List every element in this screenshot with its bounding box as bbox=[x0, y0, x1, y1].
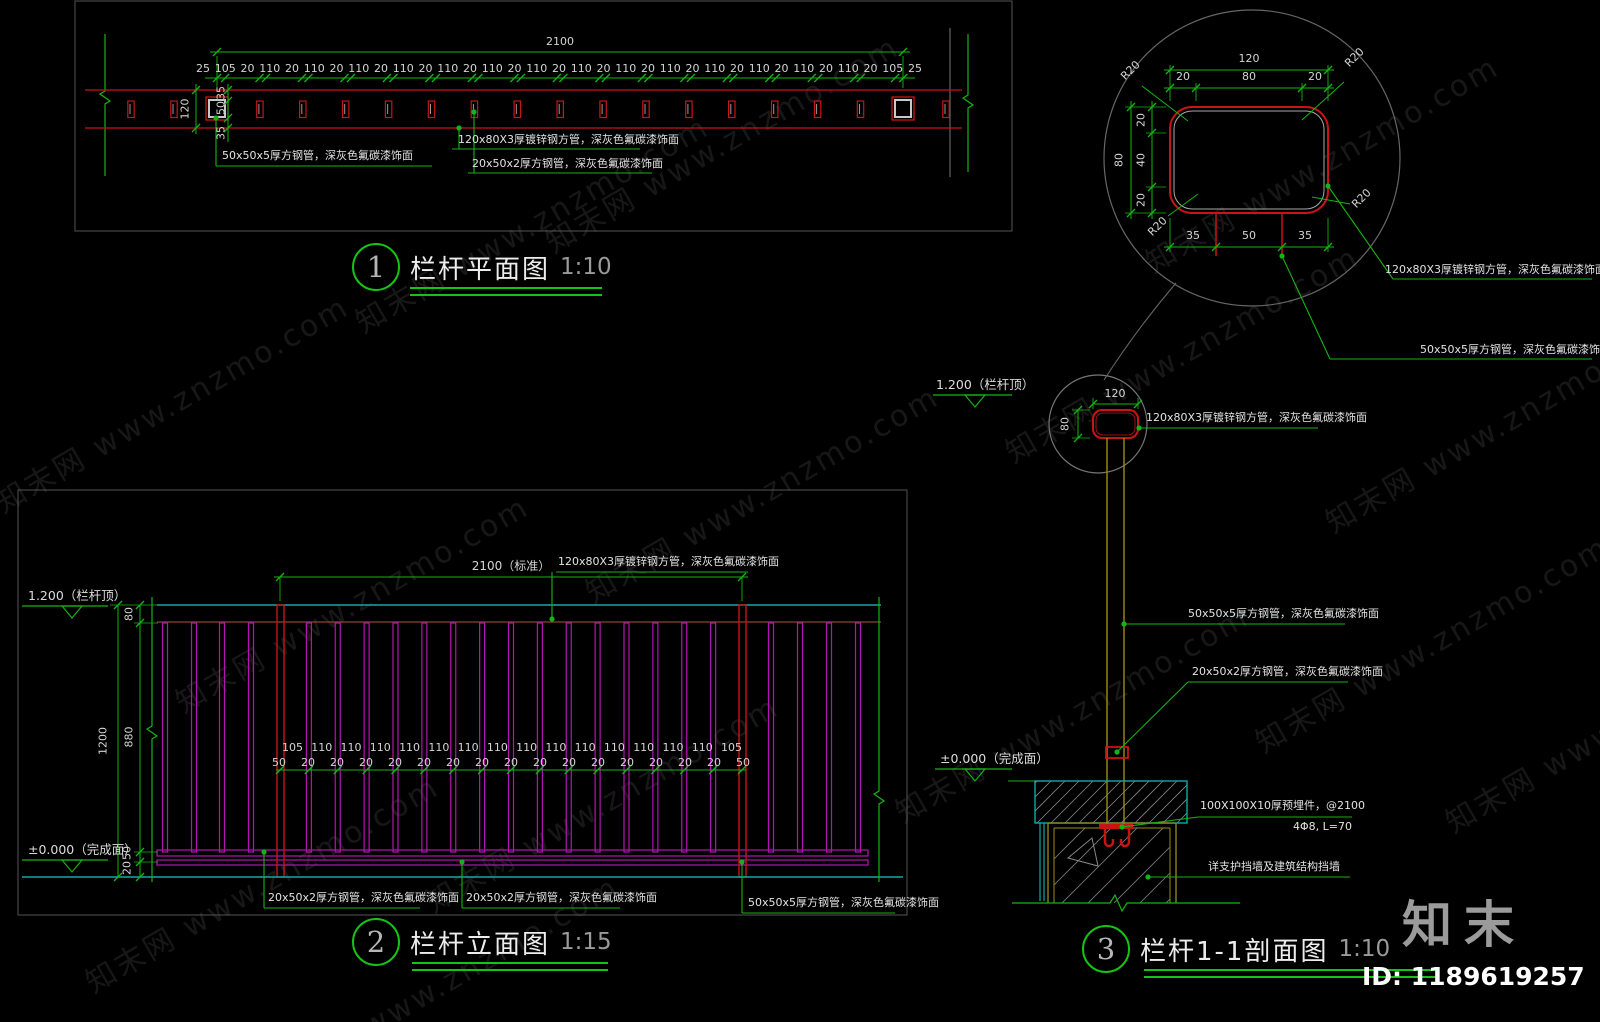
dim-label: 20 bbox=[285, 62, 299, 75]
detail-left-seg-3: 20 bbox=[1136, 193, 1149, 207]
dim-label: 110 bbox=[341, 741, 362, 754]
section-note-bar: 20x50x2厚方钢管，深灰色氟碳漆饰面 bbox=[1192, 666, 1383, 679]
dim-label: 110 bbox=[393, 62, 414, 75]
plan-dim-row: 2510520110201102011020110201102011020110… bbox=[196, 62, 922, 75]
plan-side-seg-3: 35 bbox=[216, 126, 229, 140]
section-title-block: 3 栏杆1-1剖面图 1:10 bbox=[1082, 925, 1390, 973]
dim-label: 110 bbox=[749, 62, 770, 75]
dim-label: 110 bbox=[526, 62, 547, 75]
detail-left-seg-2: 40 bbox=[1136, 153, 1149, 167]
section-title-number: 3 bbox=[1082, 925, 1130, 973]
plan-side-seg-1: 35 bbox=[216, 86, 229, 100]
elev-title: 栏杆立面图 bbox=[410, 924, 550, 961]
elev-left-seg-1: 80 bbox=[124, 607, 137, 621]
dim-label: 20 bbox=[678, 756, 692, 769]
dim-label: 20 bbox=[730, 62, 744, 75]
dim-label: 110 bbox=[482, 62, 503, 75]
section-note-embed: 100X100X10厚预埋件，@2100 bbox=[1200, 800, 1365, 813]
dim-label: 105 bbox=[282, 741, 303, 754]
plan-title: 栏杆平面图 bbox=[410, 249, 550, 286]
dim-label: 110 bbox=[348, 62, 369, 75]
dim-label: 20 bbox=[620, 756, 634, 769]
elev-title-number-text: 2 bbox=[367, 925, 385, 959]
dim-label: 50 bbox=[736, 756, 750, 769]
detail-top-total: 120 bbox=[1170, 53, 1328, 66]
dim-label: 25 bbox=[196, 62, 210, 75]
detail-bottom-seg-1: 35 bbox=[1186, 230, 1200, 243]
plan-dim-total: 2100 bbox=[217, 36, 903, 49]
dim-label: 20 bbox=[597, 62, 611, 75]
dim-label: 110 bbox=[692, 741, 713, 754]
section-title-number-text: 3 bbox=[1097, 932, 1115, 966]
section-note-post: 50x50x5厚方钢管，深灰色氟碳漆饰面 bbox=[1188, 608, 1379, 621]
detail-left-total: 80 bbox=[1114, 153, 1127, 167]
elev-dim-row-top: 1051101101101101101101101101101101101101… bbox=[282, 741, 742, 754]
section-note-wall: 详支护挡墙及建筑结构挡墙 bbox=[1208, 861, 1340, 874]
elev-bottom-note: 50x50x5厚方钢管，深灰色氟碳漆饰面 bbox=[748, 897, 939, 910]
dim-label: 20 bbox=[775, 62, 789, 75]
elev-note-top: 120x80X3厚镀锌钢方管，深灰色氟碳漆饰面 bbox=[558, 556, 779, 569]
dim-label: 110 bbox=[660, 62, 681, 75]
plan-side-total: 120 bbox=[180, 99, 193, 120]
dim-label: 105 bbox=[882, 62, 903, 75]
dim-label: 20 bbox=[504, 756, 518, 769]
dim-label: 20 bbox=[241, 62, 255, 75]
dim-label: 110 bbox=[458, 741, 479, 754]
dim-label: 20 bbox=[446, 756, 460, 769]
plan-title-underline bbox=[410, 287, 602, 296]
section-note-rebar: 4Φ8, L=70 bbox=[1200, 821, 1352, 834]
plan-note-post: 50x50x5厚方钢管，深灰色氟碳漆饰面 bbox=[222, 150, 413, 163]
detail-bottom-seg-2: 50 bbox=[1242, 230, 1256, 243]
elev-title-block: 2 栏杆立面图 1:15 bbox=[352, 918, 612, 966]
dim-label: 110 bbox=[399, 741, 420, 754]
cad-drawing-canvas: 知末网 www.znzmo.com知末网 www.znzmo.com知末网 ww… bbox=[0, 0, 1600, 1022]
elev-left-total: 1200 bbox=[98, 727, 111, 755]
elev-title-number: 2 bbox=[352, 918, 400, 966]
dim-label: 110 bbox=[516, 741, 537, 754]
dim-label: 20 bbox=[301, 756, 315, 769]
elev-bottom-note: 20x50x2厚方钢管，深灰色氟碳漆饰面 bbox=[466, 892, 657, 905]
detail-bottom-seg-3: 35 bbox=[1298, 230, 1312, 243]
dim-label: 20 bbox=[819, 62, 833, 75]
dim-label: 20 bbox=[330, 62, 344, 75]
dim-label: 110 bbox=[304, 62, 325, 75]
dim-label: 20 bbox=[463, 62, 477, 75]
dim-label: 20 bbox=[374, 62, 388, 75]
dim-label: 110 bbox=[604, 741, 625, 754]
elev-title-scale: 1:15 bbox=[560, 929, 612, 955]
dim-label: 20 bbox=[864, 62, 878, 75]
dim-label: 105 bbox=[721, 741, 742, 754]
plan-title-number-text: 1 bbox=[367, 250, 385, 284]
dim-label: 110 bbox=[259, 62, 280, 75]
dim-label: 50 bbox=[272, 756, 286, 769]
image-id: ID: 1189619257 bbox=[1362, 962, 1585, 991]
dim-label: 20 bbox=[641, 62, 655, 75]
dim-label: 25 bbox=[908, 62, 922, 75]
plan-side-seg-2: 50 bbox=[216, 101, 229, 115]
elev-left-seg-4: 20 bbox=[122, 861, 135, 875]
dim-label: 20 bbox=[533, 756, 547, 769]
dim-label: 20 bbox=[649, 756, 663, 769]
plan-title-number: 1 bbox=[352, 243, 400, 291]
section-level-bottom: ±0.000（完成面） bbox=[940, 752, 1049, 766]
dim-label: 20 bbox=[562, 756, 576, 769]
detail-left-seg-1: 20 bbox=[1136, 113, 1149, 127]
plan-note-bar: 20x50x2厚方钢管，深灰色氟碳漆饰面 bbox=[472, 158, 663, 171]
dim-label: 110 bbox=[575, 741, 596, 754]
detail-top-seg-1: 20 bbox=[1176, 71, 1190, 84]
elev-dim-row-bottom: 5020202020202020202020202020202050 bbox=[272, 756, 750, 769]
dim-label: 110 bbox=[370, 741, 391, 754]
dim-label: 20 bbox=[417, 756, 431, 769]
elev-level-top: 1.200（栏杆顶） bbox=[28, 589, 126, 603]
site-logo: 知末 bbox=[1402, 885, 1526, 957]
dim-label: 110 bbox=[437, 62, 458, 75]
detail-top-seg-2: 80 bbox=[1242, 71, 1256, 84]
dim-label: 20 bbox=[686, 62, 700, 75]
dim-label: 110 bbox=[615, 62, 636, 75]
dim-label: 110 bbox=[838, 62, 859, 75]
elev-left-seg-2: 880 bbox=[124, 727, 137, 748]
plan-note-rail: 120x80X3厚镀锌钢方管，深灰色氟碳漆饰面 bbox=[458, 134, 679, 147]
dim-label: 20 bbox=[419, 62, 433, 75]
detail-note-rail: 120x80X3厚镀锌钢方管，深灰色氟碳漆饰面 bbox=[1385, 264, 1600, 277]
dim-label: 20 bbox=[508, 62, 522, 75]
elev-left-seg-3: 50 bbox=[122, 846, 135, 860]
dim-label: 110 bbox=[545, 741, 566, 754]
dim-label: 110 bbox=[633, 741, 654, 754]
section-rail-height: 80 bbox=[1060, 417, 1073, 431]
dim-label: 20 bbox=[359, 756, 373, 769]
dim-label: 110 bbox=[571, 62, 592, 75]
dim-label: 110 bbox=[428, 741, 449, 754]
dim-label: 110 bbox=[793, 62, 814, 75]
section-title: 栏杆1-1剖面图 bbox=[1140, 931, 1328, 968]
plan-title-scale: 1:10 bbox=[560, 254, 612, 280]
section-title-scale: 1:10 bbox=[1338, 936, 1390, 962]
section-rail-width: 120 bbox=[1105, 388, 1126, 401]
section-note-rail: 120x80X3厚镀锌钢方管，深灰色氟碳漆饰面 bbox=[1146, 412, 1367, 425]
dim-label: 20 bbox=[707, 756, 721, 769]
dim-label: 20 bbox=[388, 756, 402, 769]
dim-label: 20 bbox=[330, 756, 344, 769]
dim-label: 110 bbox=[704, 62, 725, 75]
detail-top-seg-3: 20 bbox=[1308, 71, 1322, 84]
dim-label: 20 bbox=[475, 756, 489, 769]
dim-label: 105 bbox=[215, 62, 236, 75]
detail-note-post: 50x50x5厚方钢管，深灰色氟碳漆饰面 bbox=[1420, 344, 1600, 357]
dim-label: 110 bbox=[487, 741, 508, 754]
section-level-top: 1.200（栏杆顶） bbox=[936, 378, 1034, 392]
plan-title-block: 1 栏杆平面图 1:10 bbox=[352, 243, 612, 291]
dim-label: 110 bbox=[311, 741, 332, 754]
elev-title-underline bbox=[412, 962, 608, 971]
dim-label: 20 bbox=[591, 756, 605, 769]
dim-label: 20 bbox=[552, 62, 566, 75]
dim-label: 110 bbox=[662, 741, 683, 754]
elev-bottom-note: 20x50x2厚方钢管，深灰色氟碳漆饰面 bbox=[268, 892, 459, 905]
